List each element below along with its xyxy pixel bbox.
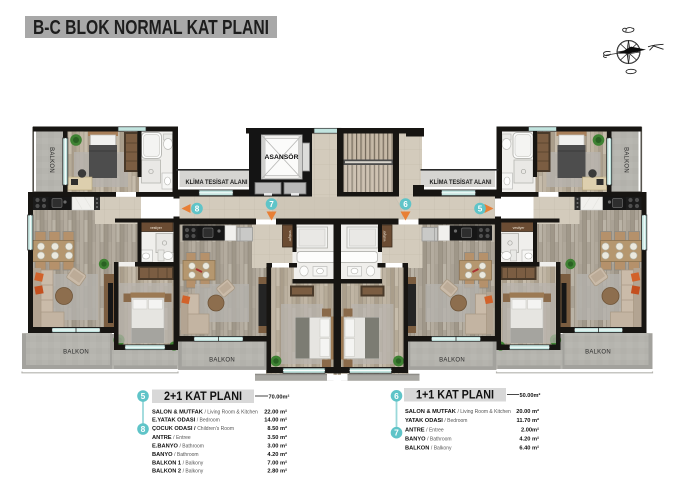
svg-text:2.80 m²: 2.80 m² bbox=[267, 467, 287, 474]
svg-text:BALKON 1 / Balkony: BALKON 1 / Balkony bbox=[152, 460, 204, 466]
svg-text:KLİMA TESİSAT ALANI: KLİMA TESİSAT ALANI bbox=[430, 177, 492, 186]
svg-text:KLİMA TESİSAT ALANI: KLİMA TESİSAT ALANI bbox=[186, 177, 248, 186]
svg-text:3.50 m²: 3.50 m² bbox=[267, 434, 287, 441]
svg-text:vestiyer: vestiyer bbox=[513, 226, 526, 230]
svg-text:vestiyer: vestiyer bbox=[288, 231, 292, 243]
svg-text:22.00 m²: 22.00 m² bbox=[264, 408, 287, 415]
svg-text:BALKON: BALKON bbox=[209, 358, 235, 364]
svg-text:2+1 KAT PLANI: 2+1 KAT PLANI bbox=[164, 389, 242, 403]
svg-text:YATAK ODASI / Bedroom: YATAK ODASI / Bedroom bbox=[405, 418, 467, 424]
svg-text:7: 7 bbox=[269, 200, 274, 209]
svg-text:ÇOCUK ODASI / Children's Room: ÇOCUK ODASI / Children's Room bbox=[152, 426, 234, 432]
svg-text:ANTRE / Entree: ANTRE / Entree bbox=[405, 427, 444, 433]
svg-text:70.00m²: 70.00m² bbox=[269, 393, 290, 400]
svg-text:6: 6 bbox=[394, 391, 399, 401]
svg-text:11.70 m²: 11.70 m² bbox=[517, 417, 540, 424]
svg-text:E.BANYO / Bathroom: E.BANYO / Bathroom bbox=[152, 444, 204, 450]
svg-text:E.YATAK ODASI / Bedroom: E.YATAK ODASI / Bedroom bbox=[152, 418, 220, 424]
svg-text:4.20 m²: 4.20 m² bbox=[267, 451, 287, 458]
svg-text:ASANSÖR: ASANSÖR bbox=[265, 152, 299, 161]
svg-text:20.00 m²: 20.00 m² bbox=[516, 408, 539, 415]
svg-text:vestiyer: vestiyer bbox=[150, 226, 163, 230]
svg-text:BALKON: BALKON bbox=[585, 350, 611, 356]
svg-text:1+1 KAT PLANI: 1+1 KAT PLANI bbox=[416, 388, 494, 402]
svg-text:BALKON: BALKON bbox=[439, 358, 465, 364]
svg-text:BALKON: BALKON bbox=[48, 147, 54, 173]
svg-text:8: 8 bbox=[141, 424, 146, 434]
svg-text:4.20 m²: 4.20 m² bbox=[519, 436, 539, 443]
svg-text:BALKON 2 / Balkony: BALKON 2 / Balkony bbox=[152, 468, 204, 474]
svg-text:50.00m²: 50.00m² bbox=[520, 392, 541, 399]
svg-text:BANYO / Bathroom: BANYO / Bathroom bbox=[405, 437, 452, 443]
svg-text:6: 6 bbox=[403, 200, 408, 209]
svg-text:BANYO / Bathroom: BANYO / Bathroom bbox=[152, 452, 199, 458]
svg-text:6.40 m²: 6.40 m² bbox=[519, 445, 539, 452]
svg-text:ANTRE / Entree: ANTRE / Entree bbox=[152, 435, 191, 441]
svg-text:14.00 m²: 14.00 m² bbox=[264, 417, 287, 424]
svg-text:BALKON / Balkony: BALKON / Balkony bbox=[405, 446, 452, 452]
svg-text:8: 8 bbox=[195, 204, 200, 213]
svg-text:3.00 m²: 3.00 m² bbox=[267, 443, 287, 450]
svg-text:7: 7 bbox=[394, 428, 399, 438]
svg-text:5: 5 bbox=[478, 204, 483, 213]
svg-text:BALKON: BALKON bbox=[623, 147, 629, 173]
svg-text:2.00m²: 2.00m² bbox=[521, 426, 539, 433]
svg-text:7.00 m²: 7.00 m² bbox=[267, 459, 287, 466]
svg-text:vestiyer: vestiyer bbox=[383, 230, 387, 242]
svg-text:B-C BLOK NORMAL KAT PLANI: B-C BLOK NORMAL KAT PLANI bbox=[33, 16, 269, 39]
svg-text:8.50 m²: 8.50 m² bbox=[267, 425, 287, 432]
svg-text:SALON & MUTFAK / Living Room &: SALON & MUTFAK / Living Room & Kitchen bbox=[405, 409, 511, 415]
svg-text:SALON & MUTFAK / Living Room &: SALON & MUTFAK / Living Room & Kitchen bbox=[152, 409, 258, 415]
svg-text:BALKON: BALKON bbox=[63, 350, 89, 356]
svg-text:5: 5 bbox=[141, 391, 146, 401]
